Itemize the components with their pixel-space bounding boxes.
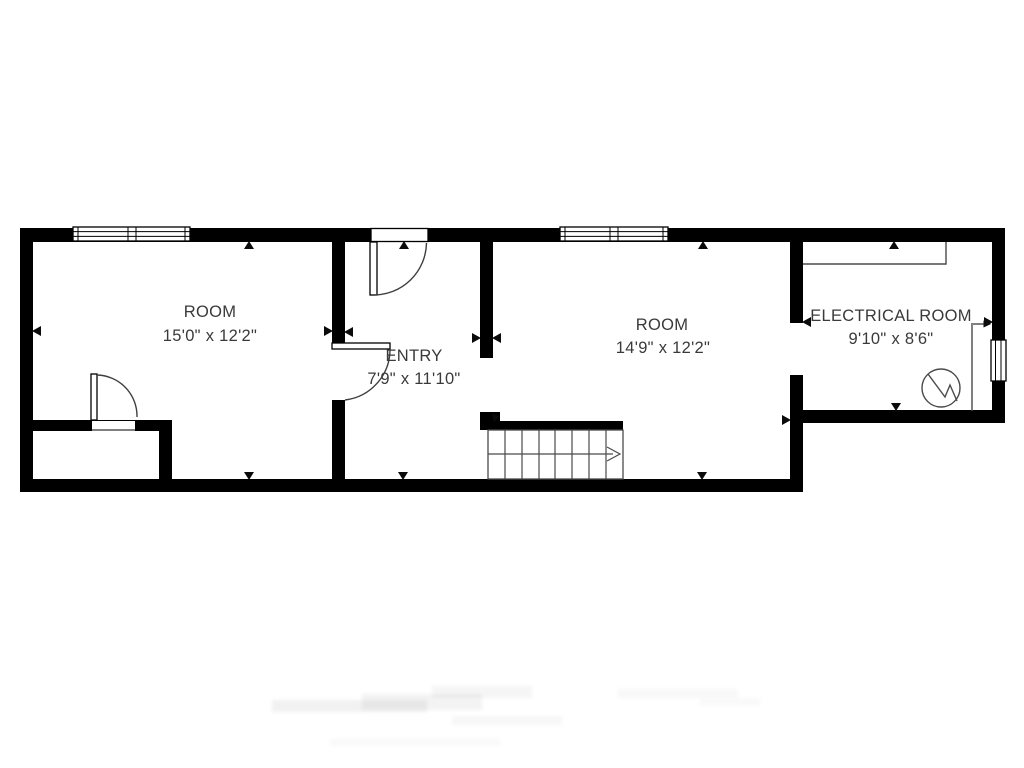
dimension-marker [782,415,791,425]
floor-plan-drawing: ROOM 15'0" x 12'2" ENTRY 7'9" x 11'10" R… [0,0,1024,768]
counter-top-line [803,242,946,264]
dimension-marker [244,472,254,480]
dimension-marker [984,317,993,327]
floor-plan-page: ROOM 15'0" x 12'2" ENTRY 7'9" x 11'10" R… [0,0,1024,768]
dimension-marker [324,326,333,336]
doors [91,229,428,432]
room2-name: ROOM [636,316,689,334]
door-entry-front [370,229,428,296]
bottom-wall-electrical [790,410,1005,423]
entry-name: ENTRY [385,347,442,365]
wall-room2-electrical-lower [790,375,803,492]
left-wall [20,228,33,492]
dimension-marker [697,472,707,480]
electrical-room-name: ELECTRICAL ROOM [810,307,972,325]
wall-room1-entry-upper [332,242,345,347]
wall-room2-electrical-upper [790,242,803,323]
alcove-wall-vertical [159,420,172,479]
window-room2-top [560,227,668,241]
wall-room1-entry-lower [332,400,345,479]
window-electrical-right [991,340,1006,381]
door-entry-front-swing-arc [374,243,427,295]
stairs-head-wall [488,421,623,430]
electrical-panel-icon [922,369,960,407]
dimension-marker [492,333,501,343]
entry-size: 7'9" x 11'10" [367,370,460,388]
dimension-marker [891,403,901,411]
electrical-fixtures [803,242,991,411]
door-entry-to-room1-leaf [332,343,390,349]
door-entry-front-leaf [370,242,377,295]
dimension-marker [698,241,708,249]
room-labels: ROOM 15'0" x 12'2" ENTRY 7'9" x 11'10" R… [163,303,972,388]
door-room1-closet-leaf [91,374,97,420]
interior-walls [30,242,803,492]
dimension-marker [344,327,353,337]
dimension-marker [889,241,899,249]
window-room1-top [73,227,190,241]
door-room1-closet [91,374,137,431]
door-room1-closet-swing-arc [97,375,137,417]
room2-size: 14'9" x 12'2" [616,339,710,357]
door-entry-front-threshold [371,229,428,242]
dimension-marker [472,333,481,343]
bottom-wall-main [20,479,803,492]
watermark [272,686,760,746]
dimension-marker [398,472,408,480]
right-wall [992,228,1005,423]
electrical-room-size: 9'10" x 8'6" [849,330,934,348]
dimension-marker [244,241,254,249]
room1-size: 15'0" x 12'2" [163,327,257,345]
dimension-marker [399,241,409,249]
alcove-wall-left [30,420,92,431]
room1-name: ROOM [184,303,237,321]
wall-entry-room2-upper [480,242,493,358]
dimension-marker [32,326,41,336]
